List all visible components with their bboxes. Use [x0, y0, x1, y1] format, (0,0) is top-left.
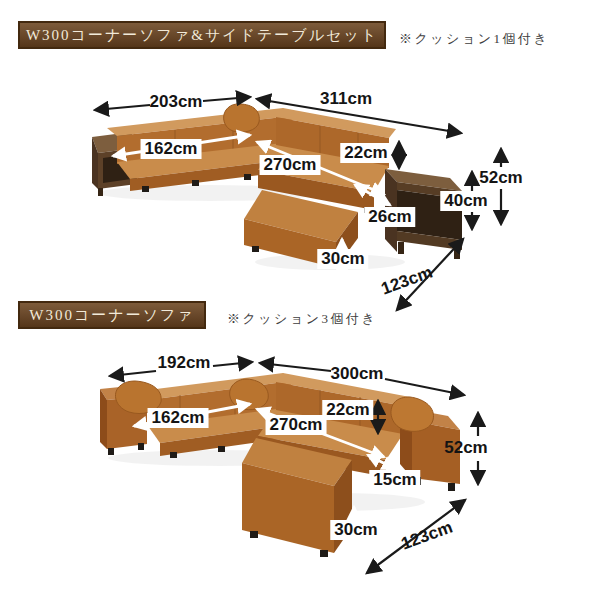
measure-side-width-2: 300cm	[331, 364, 384, 384]
measure-seat-width-2: 162cm	[148, 408, 209, 428]
product-dimension-page: W300コーナーソファ&サイドテーブルセット ※クッション1個付き W300コー…	[0, 0, 600, 600]
measure-armrest-width: 15cm	[369, 470, 420, 490]
measure-total-height-1: 52cm	[479, 168, 522, 188]
right-arm-cushion	[391, 397, 434, 431]
measure-total-height-2: 52cm	[444, 438, 487, 458]
corner-cushion	[224, 104, 260, 132]
measure-seat-length-2: 270cm	[266, 415, 327, 435]
sofa-dimension-illustration	[0, 0, 600, 600]
measure-back-width-1: 203cm	[150, 92, 203, 112]
section-1-title-bar: W300コーナーソファ&サイドテーブルセット	[18, 21, 386, 49]
measure-seat-height-2: 30cm	[330, 520, 381, 540]
measure-backrest-height-1: 22cm	[340, 143, 391, 163]
section-2-cushion-note: ※クッション3個付き	[227, 310, 377, 328]
section-2-title-bar: W300コーナーソファ	[18, 301, 206, 329]
measure-back-width-2: 192cm	[158, 353, 211, 373]
measure-backrest-height-2: 22cm	[322, 400, 373, 420]
measure-table-height: 40cm	[440, 191, 491, 211]
measure-side-width-1: 311cm	[320, 89, 372, 109]
measure-table-top-depth: 26cm	[364, 207, 415, 227]
section-1-cushion-note: ※クッション1個付き	[399, 30, 549, 48]
measure-seat-height-1: 30cm	[317, 249, 368, 269]
measure-seat-width-1: 162cm	[141, 139, 202, 159]
measure-seat-length-1: 270cm	[260, 155, 321, 175]
